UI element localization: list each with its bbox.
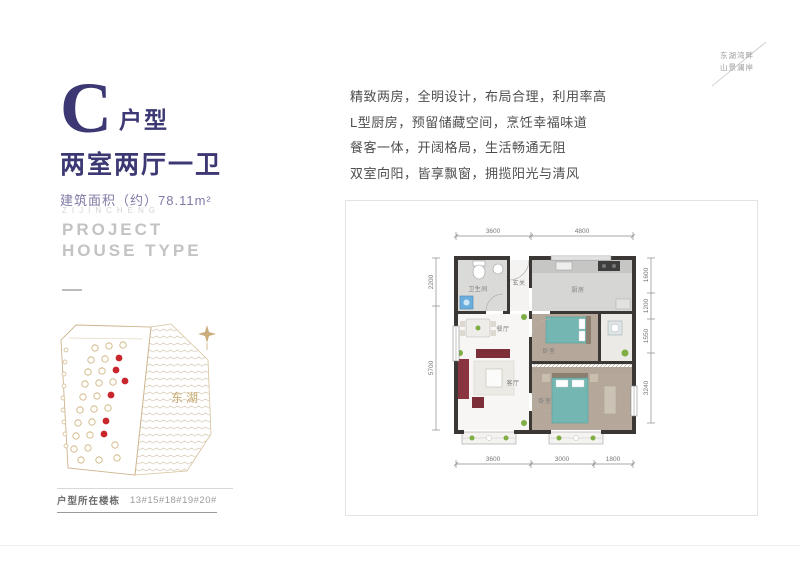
inner-road xyxy=(69,338,143,339)
room-label-bedroom1: 卧室 xyxy=(542,347,555,355)
project-name-en: ZIJINCHENG xyxy=(62,206,202,215)
english-block: ZIJINCHENG PROJECT HOUSE TYPE xyxy=(62,206,202,262)
tagline-line1: 东湖湾畔 xyxy=(720,50,754,60)
bedroom1-bed xyxy=(546,316,591,344)
room-label-kitchen: 厨房 xyxy=(571,286,584,294)
house-type-title: C 户型 xyxy=(60,76,222,141)
dim-top-1: 3600 xyxy=(486,228,501,235)
feature-list: 精致两房，全明设计，布局合理，利用率高 L型厨房，预留储藏空间，烹饪幸福味道 餐… xyxy=(350,84,607,186)
lake-label: 东湖 xyxy=(171,390,201,405)
brochure-page: C 户型 两室两厅一卫 建筑面积（约）78.11m² ZIJINCHENG PR… xyxy=(0,0,800,566)
footer-botline xyxy=(57,512,217,513)
dim-bottom-2: 3000 xyxy=(555,456,570,463)
brand-tagline: 东湖湾畔 山景澜岸 xyxy=(704,38,774,90)
dim-left-1: 2200 xyxy=(428,274,435,289)
page-bottom-edge xyxy=(0,545,800,546)
room-label-bedroom2: 卧室 xyxy=(538,397,551,405)
divider-dash xyxy=(62,289,82,291)
room-label-living: 客厅 xyxy=(506,379,519,387)
dim-bottom-3: 1800 xyxy=(606,456,621,463)
dim-right-3: 1550 xyxy=(643,328,650,343)
site-map: 东湖 xyxy=(55,320,233,491)
hero-block: C 户型 两室两厅一卫 建筑面积（约）78.11m² xyxy=(60,76,222,209)
room-label-dining: 餐厅 xyxy=(496,325,509,333)
type-letter: C xyxy=(60,76,112,141)
dim-left-2: 5700 xyxy=(428,360,435,375)
compass-icon xyxy=(198,325,216,350)
layout-title: 两室两厅一卫 xyxy=(60,145,222,181)
feature-line: 精致两房，全明设计，布局合理，利用率高 xyxy=(350,84,607,110)
dim-right-2: 1200 xyxy=(643,298,650,313)
buildings-value: 13#15#18#19#20# xyxy=(130,495,217,506)
type-suffix: 户型 xyxy=(119,101,169,141)
dim-top-2: 4800 xyxy=(575,228,590,235)
house-type-word: HOUSE TYPE xyxy=(62,240,202,261)
dim-right-4: 3240 xyxy=(643,380,650,395)
highlighted-building-markers xyxy=(101,355,129,438)
tagline-line2: 山景澜岸 xyxy=(720,62,754,72)
feature-line: 双室向阳，皆享飘窗，拥揽阳光与清风 xyxy=(350,161,607,187)
project-word: PROJECT xyxy=(62,219,202,240)
dim-bottom-1: 3600 xyxy=(486,456,501,463)
floorplan-frame: 卫生间 玄关 厨房 餐厅 客厅 卧室 卧室 xyxy=(345,200,758,516)
dim-right-1: 1600 xyxy=(643,267,650,282)
buildings-footer: 户型所在楼栋 13#15#18#19#20# xyxy=(57,488,233,513)
room-label-foyer: 玄关 xyxy=(512,279,525,287)
room-label-bath: 卫生间 xyxy=(468,285,488,293)
feature-line: L型厨房，预留储藏空间，烹饪幸福味道 xyxy=(350,110,607,136)
wardrobe-strip xyxy=(534,364,632,372)
feature-line: 餐客一体，开阔格局，生活畅通无阻 xyxy=(350,135,607,161)
buildings-label: 户型所在楼栋 xyxy=(57,493,120,507)
